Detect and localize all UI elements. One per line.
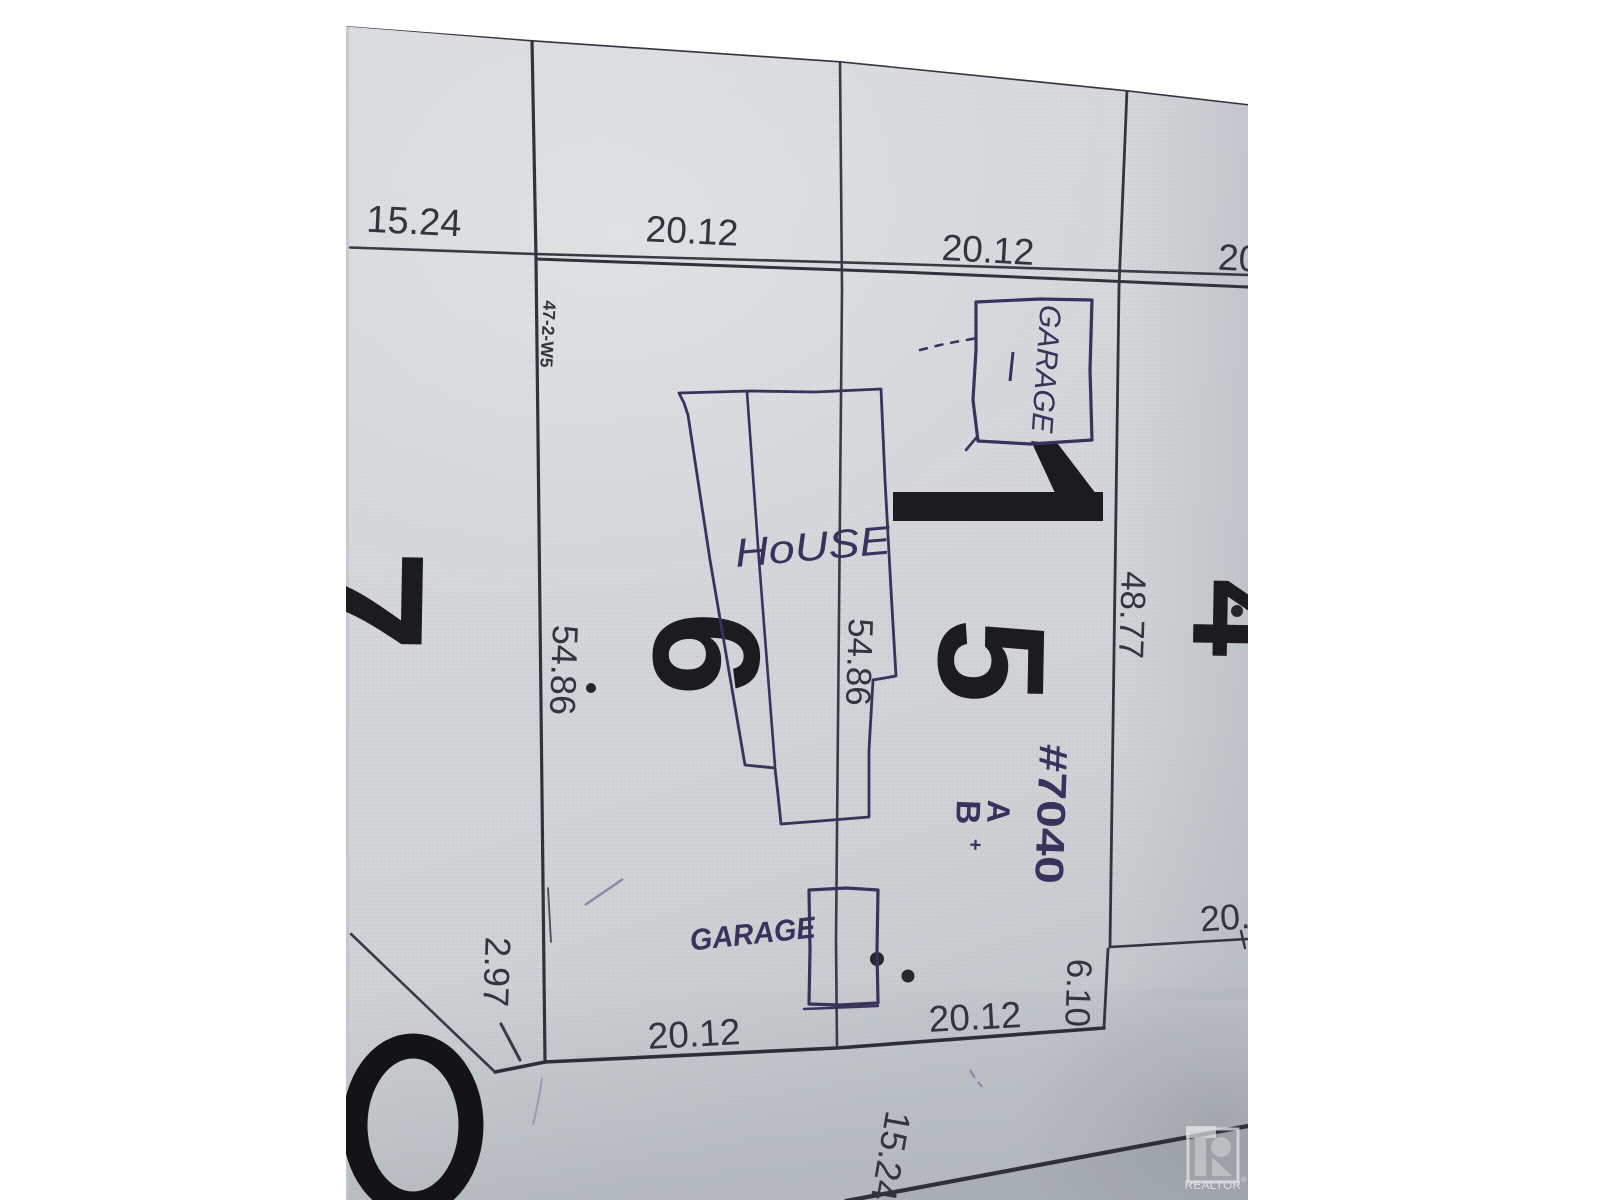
svg-text:B: B	[948, 799, 987, 825]
svg-text:20.12: 20.12	[941, 227, 1036, 273]
svg-text:20.12: 20.12	[645, 208, 739, 253]
svg-text:+: +	[964, 839, 986, 851]
svg-text:5: 5	[905, 617, 1076, 705]
svg-text:#7040: #7040	[1026, 743, 1075, 884]
svg-text:REALTOR: REALTOR	[1185, 1180, 1242, 1192]
svg-text:20.12: 20.12	[928, 994, 1023, 1040]
svg-text:6.10: 6.10	[1057, 958, 1098, 1027]
svg-text:54.86: 54.86	[838, 618, 880, 707]
svg-text:15.24: 15.24	[365, 199, 462, 246]
svg-text:48.77: 48.77	[1111, 571, 1153, 660]
svg-text:20.12: 20.12	[647, 1011, 742, 1057]
svg-text:47-2-W5: 47-2-W5	[536, 300, 559, 368]
svg-text:®: ®	[1241, 1176, 1247, 1184]
svg-text:54.86: 54.86	[542, 624, 586, 715]
svg-text:2.97: 2.97	[475, 936, 518, 1007]
